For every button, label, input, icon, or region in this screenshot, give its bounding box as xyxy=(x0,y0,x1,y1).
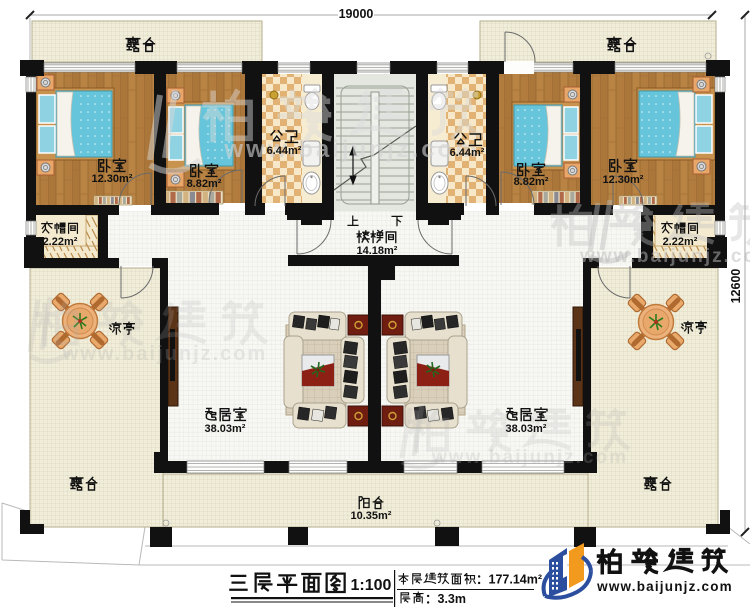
svg-text:19000: 19000 xyxy=(339,7,374,21)
svg-text:www.baijunjz.com: www.baijunjz.com xyxy=(223,136,479,163)
svg-text:14.18m²: 14.18m² xyxy=(357,245,398,257)
svg-text:6.44m²: 6.44m² xyxy=(267,145,302,157)
svg-text:38.03m²: 38.03m² xyxy=(205,423,246,435)
svg-text:www.baijunjz.com: www.baijunjz.com xyxy=(62,343,268,365)
svg-text:38.03m²: 38.03m² xyxy=(506,423,547,435)
svg-text:www.baijunjz.com: www.baijunjz.com xyxy=(579,246,750,267)
svg-text:：3.3m: ：3.3m xyxy=(425,592,466,606)
svg-text:www.baijunjz.com: www.baijunjz.com xyxy=(596,579,733,594)
svg-text:2.22m²: 2.22m² xyxy=(663,236,698,248)
svg-text:8.82m²: 8.82m² xyxy=(514,176,549,188)
svg-text:10.35m²: 10.35m² xyxy=(351,510,392,522)
svg-text:12.30m²: 12.30m² xyxy=(603,174,644,186)
svg-text:12.30m²: 12.30m² xyxy=(92,173,133,185)
svg-text:8.82m²: 8.82m² xyxy=(187,178,222,190)
svg-text:www.baijunjz.com: www.baijunjz.com xyxy=(431,447,628,468)
svg-text:6.44m²: 6.44m² xyxy=(450,147,485,159)
svg-text:2.22m²: 2.22m² xyxy=(43,236,78,248)
svg-text:1:100: 1:100 xyxy=(351,577,392,594)
svg-text:12600: 12600 xyxy=(729,269,743,304)
svg-text:：177.14m²: ：177.14m² xyxy=(476,573,542,587)
